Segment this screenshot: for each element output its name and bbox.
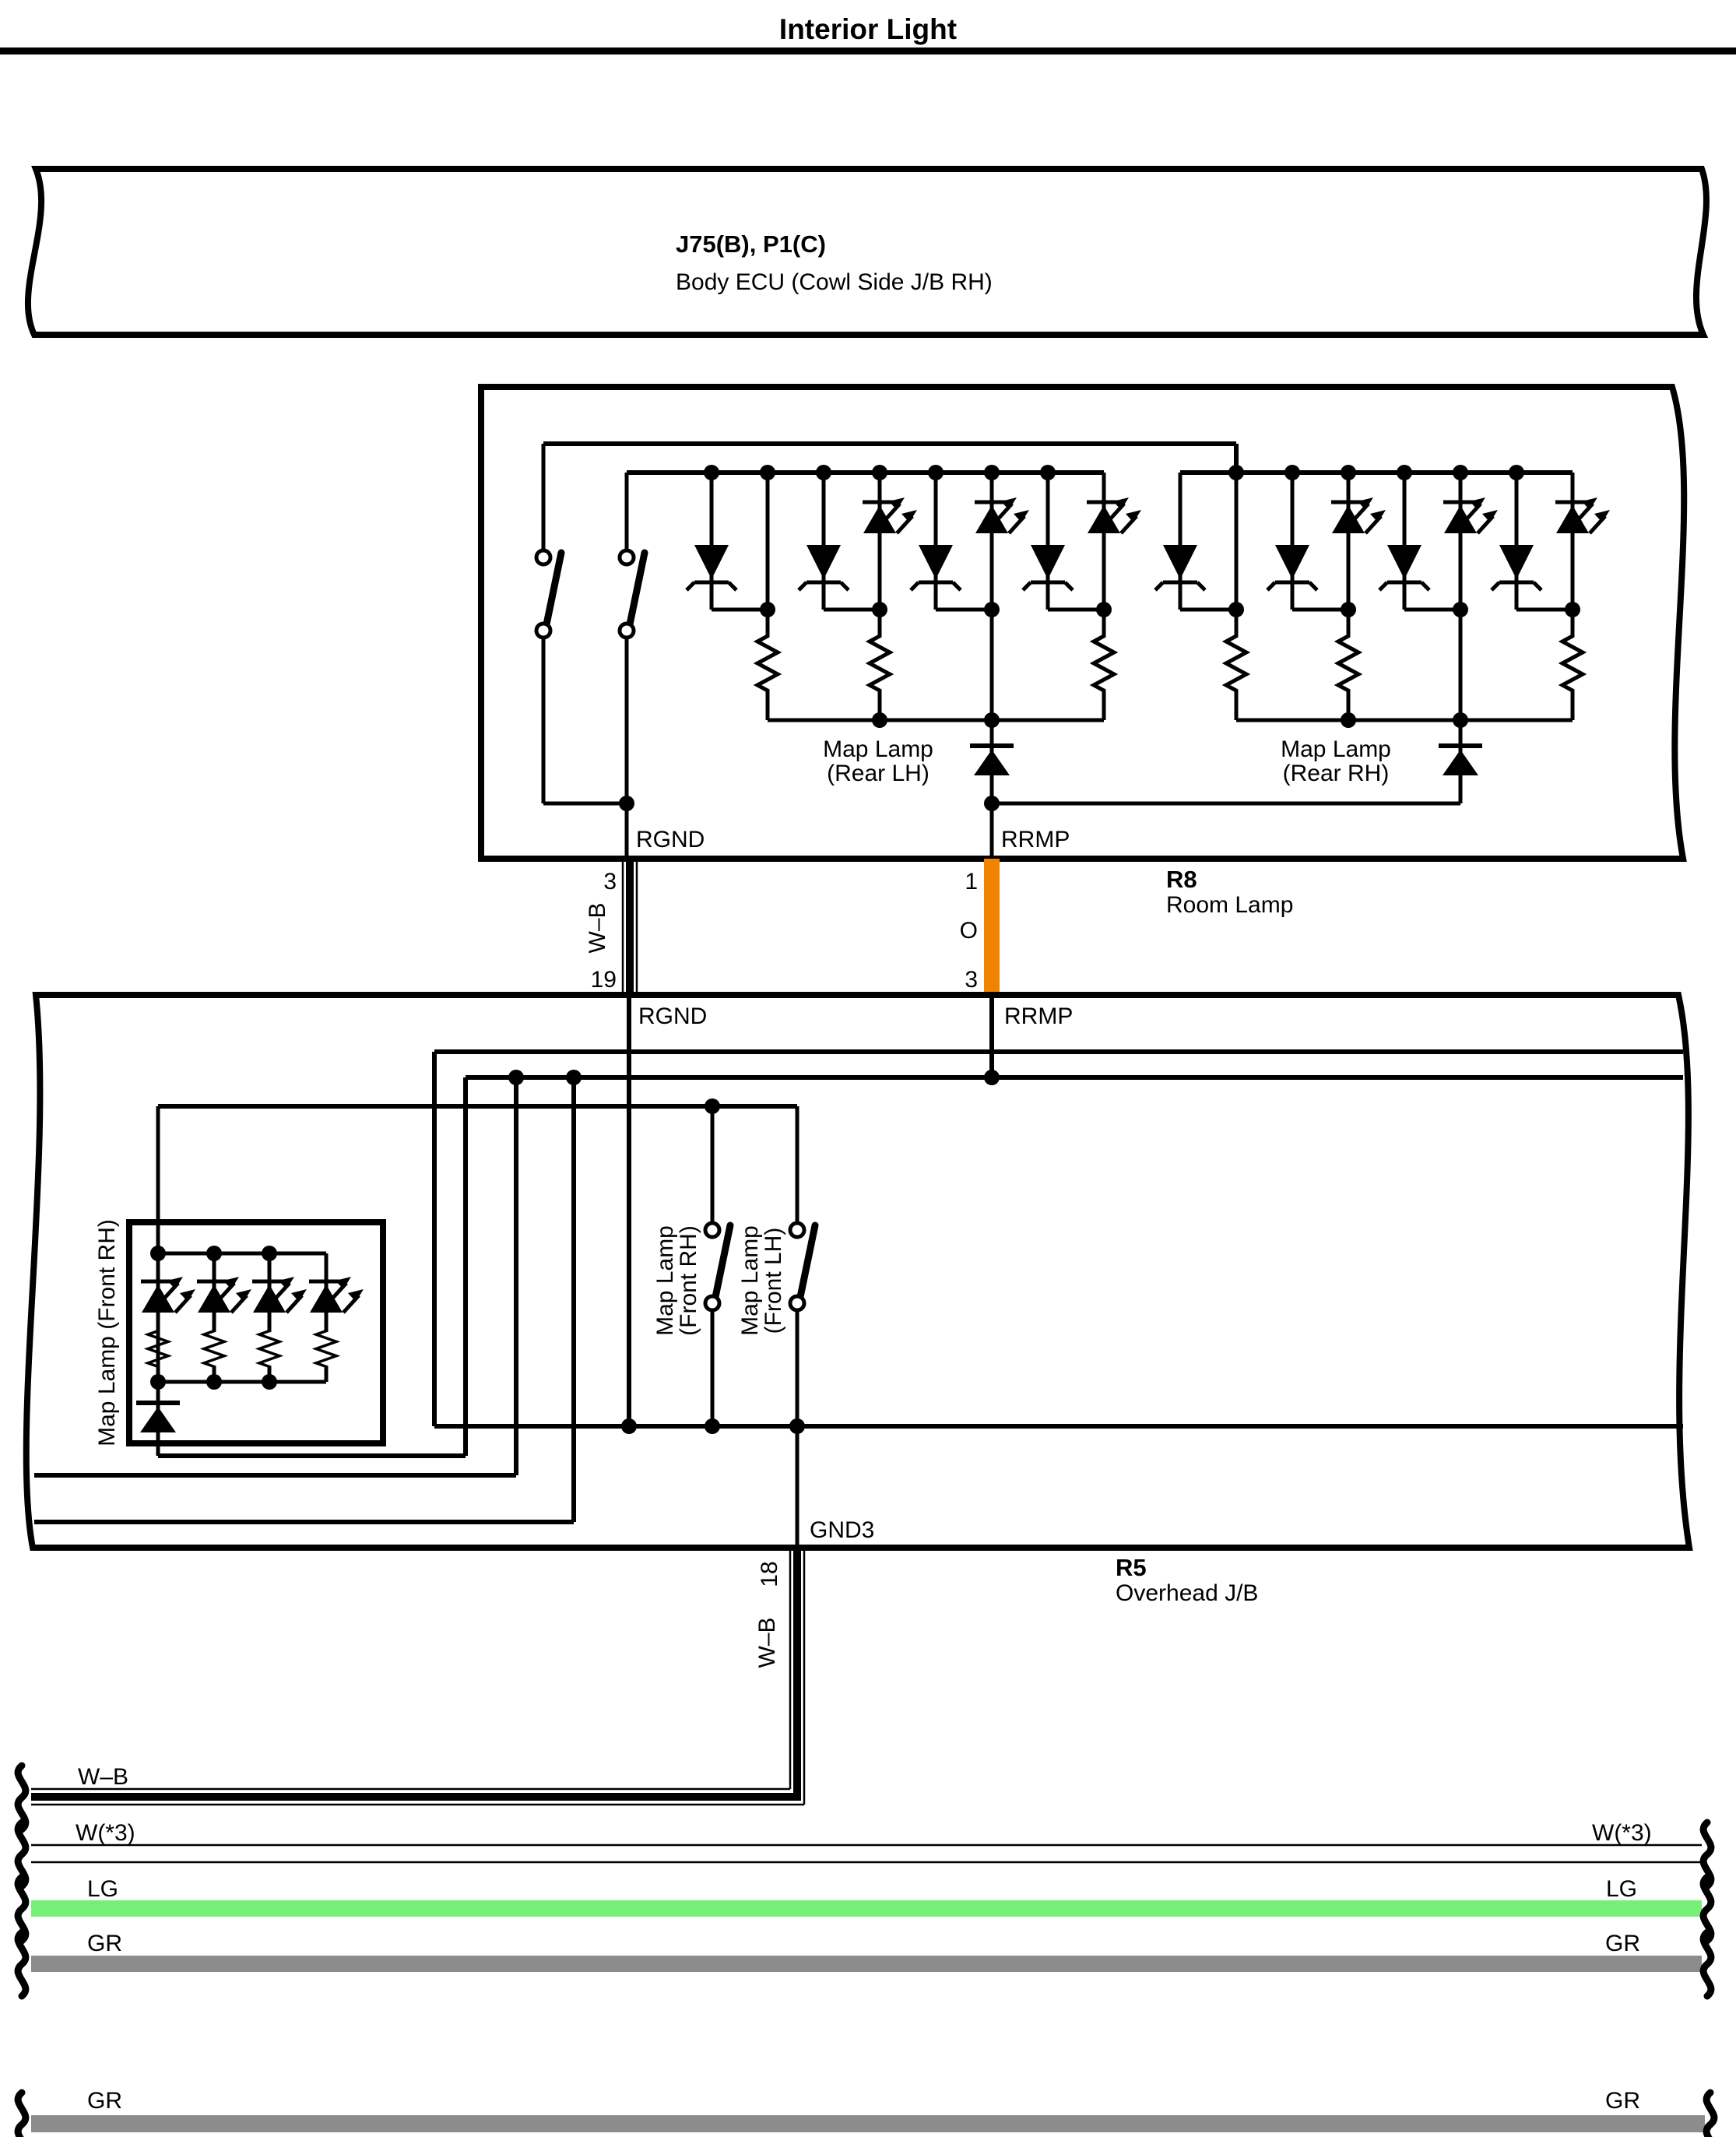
r8-code: R8 xyxy=(1166,866,1197,893)
led xyxy=(863,497,917,533)
orange-wire xyxy=(984,859,1000,995)
wire-label-right: GR xyxy=(1605,2088,1640,2114)
junction-dot xyxy=(619,796,634,811)
body-ecu-code: J75(B), P1(C) xyxy=(676,230,826,258)
room-lamp-box: Map Lamp (Rear LH) Map Lamp (Rear RH) RG… xyxy=(481,387,1684,859)
wire-label-right: GR xyxy=(1605,1931,1640,1956)
title-rule xyxy=(0,47,1736,54)
diode xyxy=(911,545,961,590)
r5-gnd3-pin-number: 18 xyxy=(757,1561,782,1587)
r5-rgnd-pin-number: 19 xyxy=(591,967,617,993)
map-lamp-front-rh-label: Map Lamp (Front RH) xyxy=(94,1219,120,1446)
r5-code: R5 xyxy=(1116,1554,1147,1581)
led xyxy=(1331,497,1386,533)
led xyxy=(1555,497,1610,533)
body-ecu-outline xyxy=(28,169,1706,335)
r8-rrmp-pin-number: 1 xyxy=(965,869,978,895)
map-lamp-front-rh-box xyxy=(129,1222,383,1443)
interior-light-diagram: Interior Light J75(B), P1(C) Body ECU (C… xyxy=(0,0,1736,2137)
map-lamp-rear-rh-label-2: (Rear RH) xyxy=(1283,761,1390,786)
w-b-stripe xyxy=(626,859,634,995)
switch-map-lamp-front-lh: Map Lamp (Front LH) xyxy=(737,1106,815,1548)
gnd3-wire-color: W–B xyxy=(754,1617,780,1668)
w-b-stripe xyxy=(31,1793,801,1801)
bottom-wire-gr: GR GR xyxy=(18,1931,1711,1996)
wire-label-left: W–B xyxy=(78,1764,128,1790)
map-lamp-rear-lh-label-2: (Rear LH) xyxy=(827,761,929,786)
resistor xyxy=(1562,631,1583,696)
r8-pin-rgnd-label: RGND xyxy=(636,827,705,852)
led xyxy=(141,1277,195,1313)
gray-wire xyxy=(31,1956,1702,1972)
resistor xyxy=(259,1327,279,1370)
wire-label-right: LG xyxy=(1606,1876,1637,1902)
wire-label-left: W(*3) xyxy=(76,1820,135,1846)
diode xyxy=(687,545,736,590)
map-lamp-rear-lh-label-1: Map Lamp xyxy=(823,736,933,762)
body-ecu-box: J75(B), P1(C) Body ECU (Cowl Side J/B RH… xyxy=(28,169,1706,335)
switch-front-rh-label-1: Map Lamp xyxy=(652,1225,678,1336)
wire-rrmp-orange: 1 O 3 xyxy=(960,859,1000,995)
switch-symbol xyxy=(536,550,561,638)
room-lamp-outline xyxy=(481,387,1684,859)
r8-name: Room Lamp xyxy=(1166,892,1293,918)
junction-dot xyxy=(984,796,1000,811)
bottom-wire-gr-2: GR GR xyxy=(18,2088,1714,2137)
map-lamp-rear-rh-label-1: Map Lamp xyxy=(1281,736,1391,762)
map-lamp-rear-lh: Map Lamp (Rear LH) xyxy=(823,736,1014,803)
wire-label-left: GR xyxy=(87,1931,122,1956)
switch-map-lamp-front-rh: Map Lamp (Front RH) xyxy=(652,1106,730,1426)
switch-front-lh-label-1: Map Lamp xyxy=(737,1225,763,1336)
bottom-wire-w3: W(*3) W(*3) xyxy=(18,1820,1711,1886)
switch-front-rh-label-2: (Front RH) xyxy=(676,1225,701,1336)
light-green-wire xyxy=(31,1900,1702,1917)
resistor xyxy=(316,1327,336,1370)
white-wire xyxy=(31,1845,1702,1862)
led xyxy=(1443,497,1498,533)
map-lamp-front-rh-unit: Map Lamp (Front RH) xyxy=(94,1106,383,1456)
wire-label-right: W(*3) xyxy=(1592,1820,1652,1846)
diode xyxy=(1155,545,1205,590)
page-title: Interior Light xyxy=(779,13,957,45)
right-led-cluster xyxy=(1155,465,1610,746)
diode xyxy=(1379,545,1429,590)
left-led-cluster xyxy=(687,465,1141,746)
led xyxy=(1087,497,1141,533)
w-b-stripe xyxy=(793,1548,801,1801)
wire-label-left: GR xyxy=(87,2088,122,2114)
r8-pin-rrmp-label: RRMP xyxy=(1001,827,1070,852)
wire-label-left: LG xyxy=(87,1876,118,1902)
resistor xyxy=(757,631,778,696)
map-lamp-rear-rh-diode xyxy=(1439,746,1482,775)
r8-rgnd-pin-number: 3 xyxy=(603,869,617,895)
switch-front-lh-label-2: (Front LH) xyxy=(761,1228,786,1334)
feed-line-right-cluster xyxy=(543,444,1236,473)
resistor xyxy=(1226,631,1246,696)
wiring-diagram-page: Interior Light J75(B), P1(C) Body ECU (C… xyxy=(0,0,1736,2137)
resistor xyxy=(870,631,890,696)
continuation-squiggle xyxy=(18,2093,26,2137)
rgnd-wire-color: W–B xyxy=(585,902,610,953)
resistor xyxy=(1338,631,1358,696)
continuation-squiggle xyxy=(1706,2093,1714,2137)
r5-pin-rgnd-label: RGND xyxy=(638,1003,707,1029)
rrmp-wire-color: O xyxy=(960,918,978,944)
bottom-wire-w-b: W–B xyxy=(18,1764,804,1829)
r5-rrmp-pin-number: 3 xyxy=(965,967,978,993)
switch-symbol xyxy=(705,1223,730,1310)
room-lamp-switch-1 xyxy=(536,444,627,803)
overhead-jb-box: RGND RRMP Map Lamp (Front RH) xyxy=(26,995,1689,1548)
gray-wire xyxy=(31,2115,1705,2132)
body-ecu-name: Body ECU (Cowl Side J/B RH) xyxy=(676,269,993,295)
led xyxy=(197,1277,251,1313)
resistor xyxy=(1094,631,1114,696)
map-lamp-rear-lh-diode xyxy=(970,746,1014,775)
diode xyxy=(1492,545,1541,590)
resistor xyxy=(204,1327,224,1370)
led xyxy=(252,1277,307,1313)
wire-rgnd-w-b: 3 W–B 19 xyxy=(585,859,637,995)
switch-symbol xyxy=(620,550,645,638)
led xyxy=(309,1277,364,1313)
diode xyxy=(1023,545,1073,590)
diode xyxy=(1267,545,1317,590)
r5-name: Overhead J/B xyxy=(1116,1580,1258,1606)
map-lamp-front-rh-diode xyxy=(136,1403,180,1432)
led xyxy=(975,497,1029,533)
switch-symbol xyxy=(790,1223,815,1310)
diode xyxy=(799,545,849,590)
r5-pin-gnd3-label: GND3 xyxy=(810,1517,874,1543)
bottom-wire-lg: LG LG xyxy=(18,1876,1711,1941)
wire-gnd3-w-b: 18 W–B xyxy=(754,1548,804,1805)
map-lamp-rear-rh: Map Lamp (Rear RH) xyxy=(1281,736,1482,803)
r5-pin-rrmp-label: RRMP xyxy=(1004,1003,1073,1029)
